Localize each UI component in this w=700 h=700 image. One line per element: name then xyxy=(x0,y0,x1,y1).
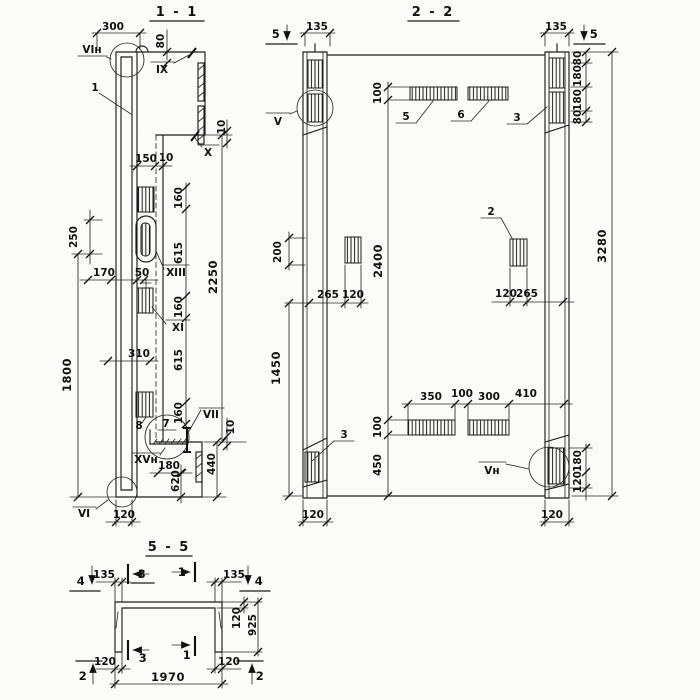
embed-plate xyxy=(468,420,509,435)
dim-150: 150 xyxy=(135,153,157,165)
label-v: V xyxy=(274,116,283,128)
label-leaders xyxy=(73,54,224,509)
cut-label-3-bot: 3 xyxy=(139,651,148,665)
dim-10-top: 10 xyxy=(216,120,228,135)
dim-80-b: 80 xyxy=(572,110,584,125)
dim-135-left: 135 xyxy=(306,21,328,33)
embed-plate xyxy=(138,187,154,212)
embed-plate xyxy=(136,392,153,417)
dim-120-brc: 120 xyxy=(541,509,563,521)
label-3-top: 3 xyxy=(513,112,520,124)
dim-120-bl: 120 xyxy=(94,656,116,668)
dim-180-a: 180 xyxy=(572,65,584,87)
dim-3280: 3280 xyxy=(595,229,609,263)
dim-10-bot: 10 xyxy=(225,420,237,435)
embed-plate xyxy=(510,239,527,266)
section-title-1-1: 1 - 1 xyxy=(156,5,199,20)
embed-plate xyxy=(345,237,361,263)
label-ix: IX xyxy=(156,64,168,76)
cut-label-5-left: 5 xyxy=(272,27,281,41)
embed-plate xyxy=(137,288,153,313)
dim-180-br: 180 xyxy=(572,450,584,472)
label-7: 7 xyxy=(162,418,169,430)
detail-circle-vin xyxy=(110,43,144,77)
label-leaders xyxy=(266,101,547,469)
dim-10-mid: 10 xyxy=(159,152,174,164)
dim-120: 120 xyxy=(113,509,135,521)
label-vii: VII xyxy=(203,409,219,421)
drawing-canvas: 1 - 1 300 80 150 10 xyxy=(0,0,700,700)
label-5: 5 xyxy=(402,111,409,123)
label-3-bot: 3 xyxy=(340,429,347,441)
dim-120-bl: 120 xyxy=(302,509,324,521)
section-1-1: 1 - 1 300 80 150 10 xyxy=(60,5,246,526)
dim-925: 925 xyxy=(247,614,259,636)
dim-200: 200 xyxy=(272,241,284,263)
cut-label-4-left: 4 xyxy=(77,574,86,588)
cut-label-5-right: 5 xyxy=(590,27,599,41)
blueprint-page: 1 - 1 300 80 150 10 xyxy=(0,0,700,700)
label-xi: XI xyxy=(172,322,184,334)
label-xvn: XVн xyxy=(134,454,157,466)
section-title-5-5: 5 - 5 xyxy=(148,540,191,555)
cut-label-3-top: 3 xyxy=(138,567,147,581)
dim-170: 170 xyxy=(93,267,115,279)
detail-circle-vi xyxy=(107,477,137,507)
panel-profile-lines xyxy=(116,46,205,497)
dim-100-top: 100 xyxy=(372,82,384,104)
dim-300: 300 xyxy=(478,391,500,403)
dim-620: 620 xyxy=(170,470,182,492)
dim-1970: 1970 xyxy=(151,670,185,684)
lifting-slot-hatch xyxy=(141,223,150,256)
cut-label-1-top: 1 xyxy=(178,565,187,579)
dim-310: 310 xyxy=(128,348,150,360)
dim-135-right: 135 xyxy=(223,569,245,581)
dim-1450: 1450 xyxy=(269,351,283,385)
cut-label-1-bot: 1 xyxy=(183,648,192,662)
cut-label-2-right: 2 xyxy=(256,669,265,683)
plate-end-mark xyxy=(183,428,191,452)
dim-160-a: 160 xyxy=(173,187,185,209)
label-1: 1 xyxy=(91,82,98,94)
dim-450: 450 xyxy=(372,454,384,476)
section-trace-ticks xyxy=(188,48,199,141)
embed-plate xyxy=(308,60,323,88)
embed-plate xyxy=(548,448,564,484)
embed-plate xyxy=(468,87,508,100)
dim-100-mid: 100 xyxy=(451,388,473,400)
dim-160-b: 160 xyxy=(173,296,185,318)
embed-plate xyxy=(549,58,565,88)
section-title-2-2: 2 - 2 xyxy=(412,5,455,20)
embed-plate xyxy=(410,87,457,100)
dim-120-right: 120 xyxy=(495,288,517,300)
dim-135-left: 135 xyxy=(93,569,115,581)
dim-265-right: 265 xyxy=(516,288,538,300)
dim-250: 250 xyxy=(68,226,80,248)
tick-marks xyxy=(111,578,262,688)
label-2: 2 xyxy=(487,206,494,218)
dim-80-a: 80 xyxy=(572,51,584,66)
tick-marks xyxy=(285,29,616,526)
dim-265-left: 265 xyxy=(317,289,339,301)
dim-50: 50 xyxy=(135,267,150,279)
label-vi: VI xyxy=(78,508,90,520)
dim-100-bot: 100 xyxy=(372,416,384,438)
dim-1800: 1800 xyxy=(60,358,74,392)
dim-120-top: 120 xyxy=(231,607,243,629)
dim-2250: 2250 xyxy=(206,260,220,294)
section-5-5: 5 - 5 135 135 120 925 120 120 1970 4 4 3… xyxy=(70,540,270,688)
cut-label-4-right: 4 xyxy=(255,574,264,588)
dim-410: 410 xyxy=(515,388,537,400)
section-2-2: 2 - 2 135 135 80 180 180 xyxy=(266,5,618,526)
dim-440: 440 xyxy=(206,453,218,475)
label-xiii: XIII xyxy=(166,267,186,279)
dim-350: 350 xyxy=(420,391,442,403)
dim-615-b: 615 xyxy=(173,349,185,371)
dim-120-br: 120 xyxy=(218,656,240,668)
leg-marks xyxy=(116,612,221,628)
label-8: 8 xyxy=(135,420,142,432)
channel-outline xyxy=(115,602,222,652)
dim-300: 300 xyxy=(102,21,124,33)
dim-120-br: 120 xyxy=(572,471,584,493)
label-vin: VIн xyxy=(82,44,101,56)
dim-180-b: 180 xyxy=(572,89,584,111)
dim-80: 80 xyxy=(155,34,167,49)
embed-plate xyxy=(549,92,565,123)
dim-160-c: 160 xyxy=(173,402,185,424)
label-6: 6 xyxy=(457,109,464,121)
dim-135-right: 135 xyxy=(545,21,567,33)
embed-plate xyxy=(408,420,455,435)
cut-label-2-left: 2 xyxy=(79,669,88,683)
dim-120-left: 120 xyxy=(342,289,364,301)
embed-plate xyxy=(308,94,323,122)
dim-2400: 2400 xyxy=(371,244,385,278)
label-vn: Vн xyxy=(484,465,499,477)
label-x: X xyxy=(204,147,212,159)
dim-615-a: 615 xyxy=(173,242,185,264)
